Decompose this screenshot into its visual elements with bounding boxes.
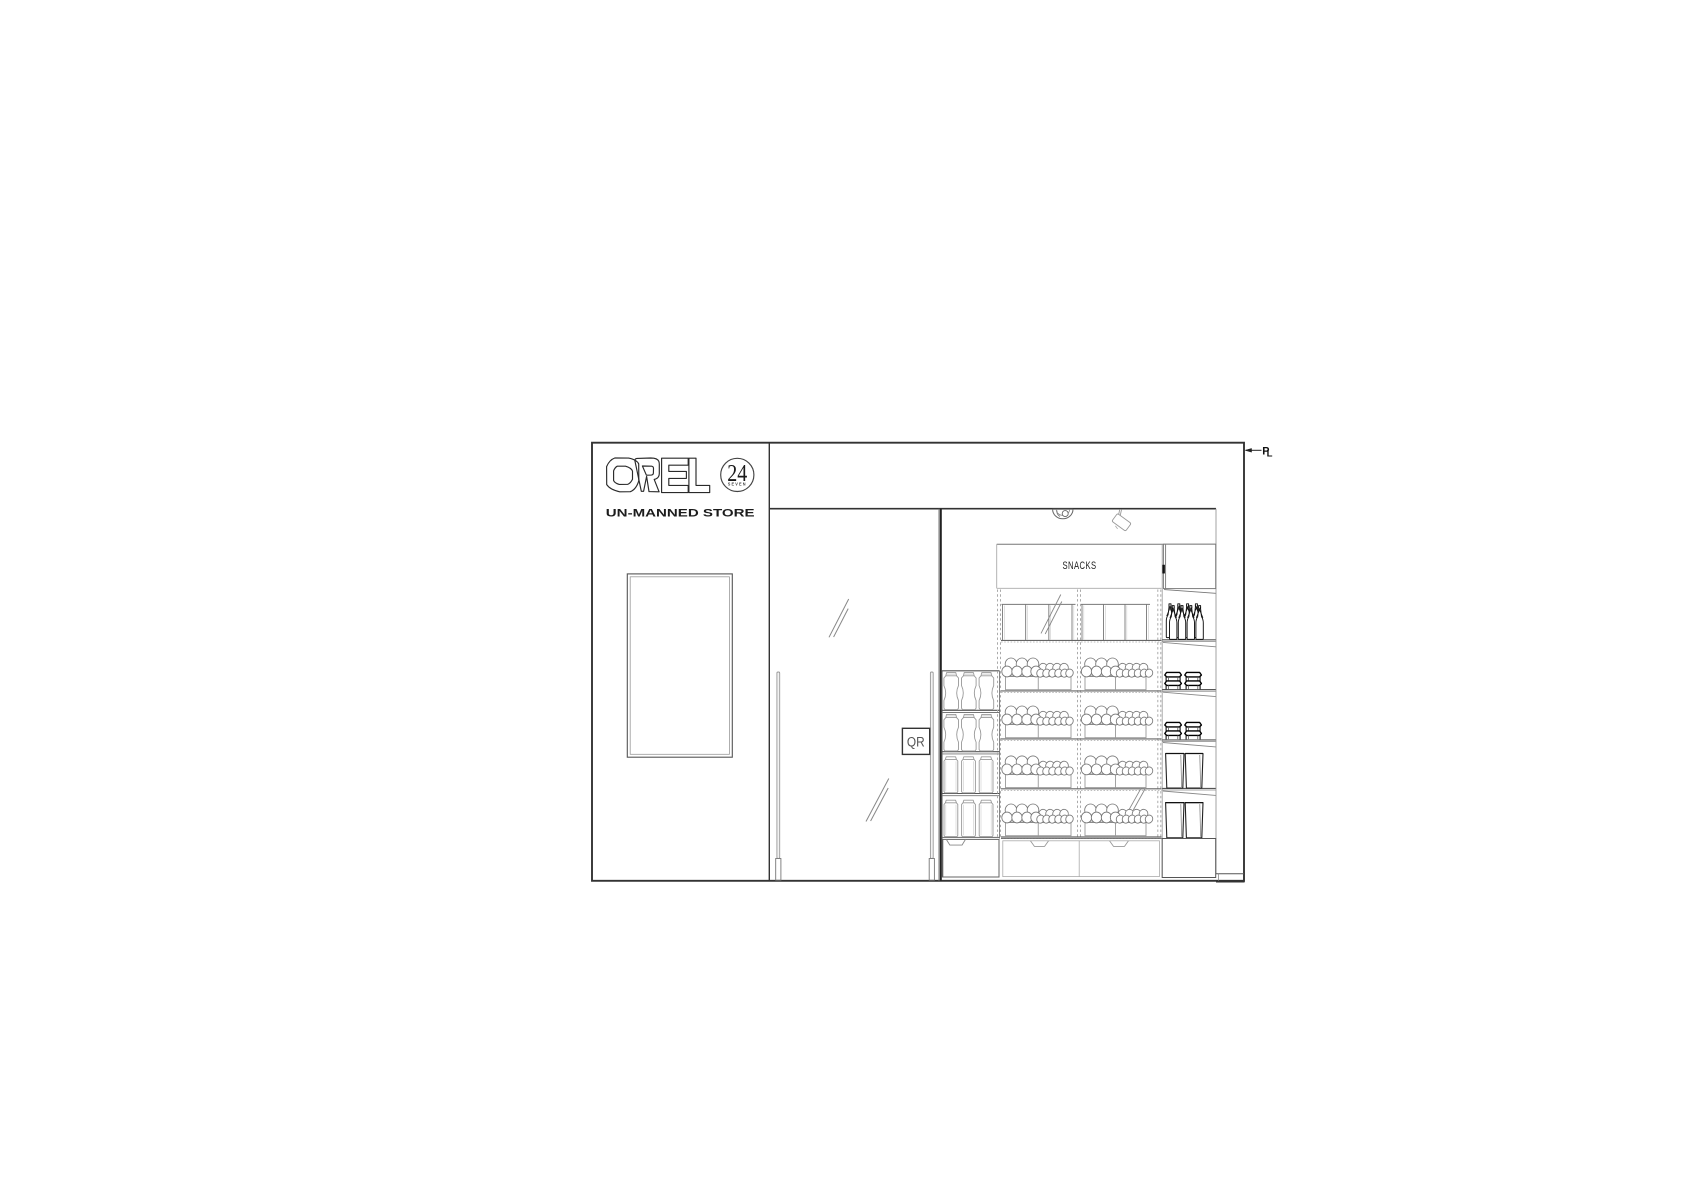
svg-text:QR: QR — [907, 734, 925, 750]
svg-text:UN-MANNED STORE: UN-MANNED STORE — [606, 507, 755, 519]
svg-text:SNACKS: SNACKS — [1063, 560, 1097, 572]
svg-text:SEVEN: SEVEN — [728, 481, 747, 486]
svg-text:L: L — [1267, 448, 1273, 459]
